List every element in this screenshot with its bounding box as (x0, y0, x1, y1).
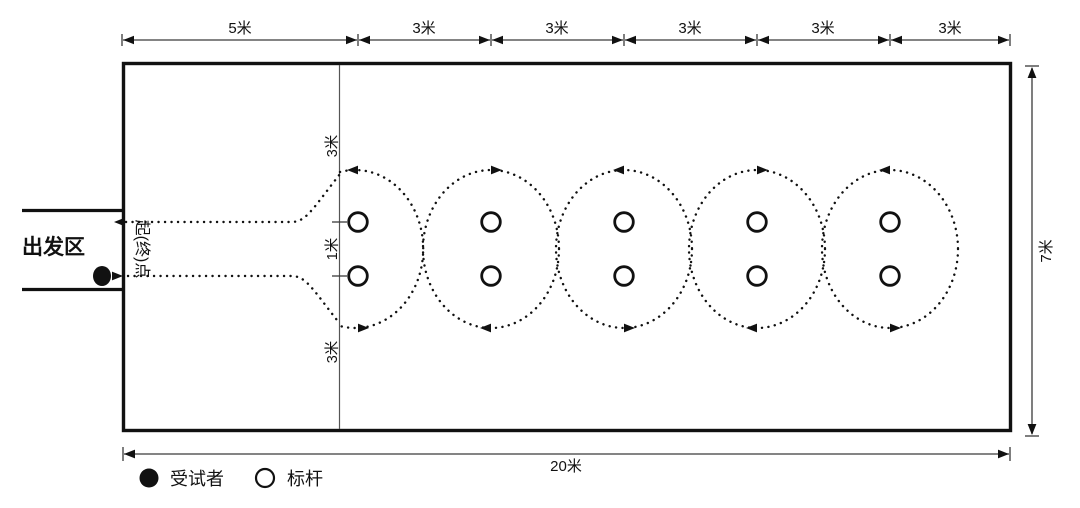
dim-arrow-right-icon (878, 36, 889, 44)
dim-arrow-left-icon (891, 36, 902, 44)
dim-arrow-right-icon (998, 36, 1009, 44)
loop4-top-arrow-right-icon (757, 166, 768, 175)
inner-dim-middle-label: 1米 (324, 237, 341, 260)
loop4-bottom-arrow-left-icon (746, 324, 757, 333)
pole-icon (748, 267, 767, 286)
path-entry-line (128, 276, 340, 324)
inner-dim-bottom-label: 3米 (324, 340, 341, 363)
pole-icon (881, 213, 900, 232)
course-diagram: 5米 3米 3米 3米 3米 3米 出发区 起(终)点 (0, 0, 1080, 508)
path-loop-1 (340, 170, 423, 328)
right-dim-label: 7米 (1038, 239, 1055, 262)
pole-icon (482, 213, 501, 232)
path-loop-5 (822, 170, 958, 328)
top-dimension: 5米 3米 3米 3米 3米 3米 (122, 20, 1010, 46)
top-dim-label: 3米 (811, 20, 834, 37)
legend: 受试者 标杆 (140, 469, 324, 490)
start-direction-arrow-icon (112, 272, 123, 281)
dim-arrow-down-icon (1028, 424, 1037, 435)
top-dim-label: 3米 (412, 20, 435, 37)
path-loop-2 (423, 170, 559, 328)
dim-arrow-left-icon (123, 36, 134, 44)
inner-dim-top-label: 3米 (324, 134, 341, 157)
dim-arrow-left-icon (492, 36, 503, 44)
loop3-top-arrow-left-icon (613, 166, 624, 175)
open-circle-icon (256, 469, 274, 487)
loop1-bottom-arrow-right-icon (358, 324, 369, 333)
top-dim-label: 3米 (938, 20, 961, 37)
loop3-bottom-arrow-right-icon (624, 324, 635, 333)
top-dim-label: 5米 (228, 20, 251, 37)
right-dimension: 7米 (1025, 66, 1055, 436)
pole-icon (881, 267, 900, 286)
pole-icon (615, 213, 634, 232)
pole-icon (615, 267, 634, 286)
loop2-bottom-arrow-left-icon (480, 324, 491, 333)
court-boundary (124, 64, 1011, 431)
start-lane: 出发区 (22, 211, 123, 290)
path-direction-arrows (114, 166, 901, 333)
path-loop-3 (556, 170, 692, 328)
pole-icon (482, 267, 501, 286)
dim-arrow-left-icon (359, 36, 370, 44)
marker-poles (349, 213, 900, 286)
dim-arrow-right-icon (479, 36, 490, 44)
path-exit-line (126, 174, 340, 222)
top-dim-label: 3米 (678, 20, 701, 37)
pole-icon (748, 213, 767, 232)
course-path (126, 170, 958, 328)
top-dim-label: 3米 (545, 20, 568, 37)
subject-dot-icon (93, 266, 111, 286)
dim-arrow-up-icon (1028, 67, 1037, 78)
exit-arrow-left-icon (114, 218, 125, 227)
legend-pole-label: 标杆 (287, 469, 323, 489)
path-loop-4 (689, 170, 825, 328)
loop5-top-arrow-left-icon (879, 166, 890, 175)
start-area-label: 出发区 (22, 235, 85, 259)
dim-arrow-left-icon (124, 450, 135, 459)
bottom-dimension: 20米 (123, 447, 1010, 475)
dim-arrow-right-icon (346, 36, 357, 44)
legend-subject-label: 受试者 (170, 469, 224, 489)
pole-icon (349, 267, 368, 286)
dim-arrow-left-icon (625, 36, 636, 44)
loop1-top-arrow-left-icon (347, 166, 358, 175)
dim-arrow-right-icon (745, 36, 756, 44)
loop2-top-arrow-right-icon (491, 166, 502, 175)
inner-dimensions: 3米 1米 3米 (324, 134, 347, 363)
start-finish-label: 起(终)点 (133, 220, 151, 279)
dim-arrow-right-icon (612, 36, 623, 44)
dim-arrow-right-icon (998, 450, 1009, 459)
bottom-dim-label: 20米 (550, 458, 582, 475)
loop5-bottom-arrow-right-icon (890, 324, 901, 333)
diagram-svg: 5米 3米 3米 3米 3米 3米 出发区 起(终)点 (0, 0, 1080, 508)
pole-icon (349, 213, 368, 232)
filled-circle-icon (140, 469, 159, 488)
dim-arrow-left-icon (758, 36, 769, 44)
